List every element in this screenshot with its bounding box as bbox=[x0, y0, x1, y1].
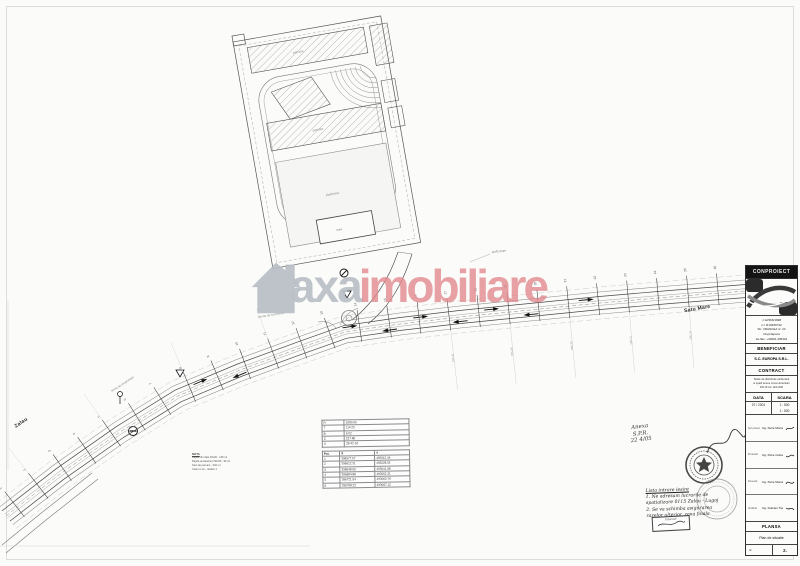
contract-label: CONTRACT bbox=[746, 366, 797, 376]
fork-edge bbox=[6, 479, 98, 553]
station-tick bbox=[154, 387, 171, 414]
lane-arrow-head bbox=[233, 374, 239, 378]
staff-name: Ing. Felician Trandafir bbox=[762, 506, 783, 510]
table-cell: 28-42-16 bbox=[345, 440, 410, 446]
handwritten-memo: Anexa S.P.R. 22 4/05 bbox=[629, 423, 652, 445]
contract-line: DN 1F km 110+500 bbox=[747, 386, 796, 390]
station-tick bbox=[324, 318, 335, 348]
profile-label: profil drum bbox=[492, 248, 507, 254]
projection-line bbox=[171, 343, 183, 373]
station-number: 4 bbox=[72, 432, 76, 436]
handwritten-notes: Lista intrare iesire 1. Ne adresam lucra… bbox=[645, 485, 762, 520]
station-number: 18 bbox=[473, 287, 477, 291]
station-number: 17 bbox=[443, 291, 447, 295]
station-number: 21 bbox=[563, 278, 567, 282]
staff-name: Ing. Petre Muresan bbox=[762, 480, 783, 484]
stamp-box: Intocmit bbox=[652, 515, 691, 532]
data-scara-row: DATA 07 / 2001 SCARA 1 : 500 1 : 500 bbox=[746, 393, 797, 415]
station-number: 3 bbox=[47, 449, 51, 453]
lane-arrow-head bbox=[201, 379, 207, 383]
station-tick bbox=[717, 273, 720, 305]
company-name: CONPROIECT bbox=[746, 266, 797, 279]
signature-icon bbox=[785, 499, 795, 517]
station-number: 23 bbox=[623, 273, 627, 277]
station-number: 16 bbox=[413, 294, 417, 298]
station-number: 1 bbox=[0, 486, 3, 490]
table-row: 6396758.22493067.12 bbox=[323, 482, 410, 489]
beneficiar-label: BENEFICIAR bbox=[746, 344, 797, 354]
plansa-number-row: nr. 2. bbox=[746, 545, 797, 555]
staff-row: Proiectat Ing. Petre Ciubancan bbox=[746, 442, 797, 469]
road-line bbox=[13, 302, 747, 525]
lane-arrow-head bbox=[453, 320, 459, 324]
profile-leader bbox=[470, 254, 490, 262]
staff-role: Desenat bbox=[748, 480, 760, 483]
coordinates-table: Pct.XY1396577.07493012.442396612.3149302… bbox=[322, 449, 411, 489]
plansa-nr-label: nr. bbox=[746, 545, 773, 555]
table-cell: 396758.22 bbox=[340, 482, 375, 488]
scara-cell: SCARA 1 : 500 1 : 500 bbox=[771, 393, 797, 414]
station-number: 26 bbox=[713, 265, 717, 269]
station-tick bbox=[627, 281, 630, 313]
access-road bbox=[318, 252, 412, 328]
staff-name: Ing. Petre Muresan bbox=[762, 426, 783, 430]
parcel-group: parcare parcare platforma statie bbox=[232, 9, 426, 268]
station-tick bbox=[102, 420, 120, 446]
side-building-3 bbox=[388, 106, 405, 128]
side-building-1 bbox=[369, 23, 394, 66]
data-cell: DATA 07 / 2001 bbox=[746, 393, 771, 414]
lane-arrow-head bbox=[588, 298, 594, 302]
station-number: 25 bbox=[683, 268, 687, 272]
nota-line: Casiu in ax - detaliu 1 bbox=[192, 468, 252, 472]
station-tick bbox=[537, 289, 540, 321]
plansa-nr-value: 2. bbox=[773, 546, 797, 555]
data-label: DATA bbox=[746, 393, 771, 402]
station-tick bbox=[567, 286, 570, 318]
access-road-edge bbox=[352, 252, 398, 320]
station-number: 6 bbox=[123, 398, 127, 402]
station-number: 7 bbox=[148, 382, 152, 386]
station-tick bbox=[128, 403, 145, 430]
station-number: 10 bbox=[234, 341, 239, 346]
station-tick bbox=[597, 283, 600, 315]
table-cell: U bbox=[322, 441, 344, 447]
station-number: 15 bbox=[383, 298, 388, 302]
scara-label: SCARA bbox=[772, 393, 797, 402]
station-tick bbox=[687, 276, 690, 308]
staff-role: Sef proiect bbox=[748, 427, 760, 430]
elevation-label: 295.41 bbox=[450, 353, 455, 362]
staff-role: Proiectat bbox=[748, 453, 760, 456]
scara-value: 1 : 500 bbox=[772, 408, 797, 414]
station-tick bbox=[657, 278, 660, 310]
traffic-signs bbox=[118, 269, 352, 436]
signature-icon bbox=[785, 419, 795, 437]
accel-lane-label: banda de accelerare bbox=[258, 311, 286, 319]
station-number: 20 bbox=[533, 281, 537, 285]
table-cell: 6 bbox=[323, 483, 340, 489]
projection-line bbox=[84, 394, 102, 420]
station-number: 24 bbox=[653, 270, 657, 274]
access-road-edge bbox=[368, 254, 412, 324]
staff-name: Ing. Petre Ciubancan bbox=[762, 453, 783, 457]
elevation-label: 295.36 bbox=[509, 347, 514, 356]
projection-line bbox=[9, 448, 29, 473]
plansa-title: Plan de situatie bbox=[746, 532, 797, 545]
nota-block: NOTA Rigola din dale 30x30 - 125 ml Rigo… bbox=[192, 452, 252, 472]
parking-row-top bbox=[247, 27, 368, 73]
yield-sign-icon bbox=[343, 291, 351, 298]
side-building-2 bbox=[381, 78, 399, 102]
station-tick bbox=[53, 454, 71, 480]
station-number: 19 bbox=[503, 284, 507, 288]
station-tick bbox=[507, 292, 510, 324]
signature-icon bbox=[785, 473, 795, 491]
station-number: 9 bbox=[206, 355, 210, 358]
beneficiar-name: S.C. EUROPA S.R.L. bbox=[746, 354, 797, 366]
access-road-end bbox=[398, 252, 412, 254]
station-number: 12 bbox=[291, 320, 296, 325]
signature-icon bbox=[656, 520, 686, 528]
table-cell: 493067.12 bbox=[375, 482, 410, 488]
plansa-label: PLANSA bbox=[746, 522, 797, 532]
station-number: 22 bbox=[593, 275, 597, 279]
contract-description: Statie de distributie carburanti si spat… bbox=[746, 376, 797, 393]
station-tick bbox=[447, 298, 451, 330]
staff-row: Sef proiect Ing. Petre Muresan bbox=[746, 415, 797, 442]
lane-arrow-head bbox=[422, 315, 428, 319]
drawing-sheet: parcare parcare platforma statie bbox=[0, 0, 800, 566]
lane-arrow-head bbox=[493, 307, 499, 311]
post-sign-icon bbox=[118, 392, 123, 397]
lane-arrow-head bbox=[524, 313, 530, 317]
station-tick bbox=[268, 339, 279, 369]
coordinate-tables: R1000.00T114.25B6.52C227.80U28-42-16Pct.… bbox=[321, 418, 410, 492]
station-tick bbox=[296, 328, 307, 358]
signature-icon bbox=[785, 446, 795, 464]
geometry-table: R1000.00T114.25B6.52C227.80U28-42-16 bbox=[321, 418, 409, 447]
elevation-label: 295.21 bbox=[628, 335, 633, 344]
ramp-fan bbox=[360, 64, 376, 80]
station-number: 14 bbox=[353, 302, 358, 306]
property-limit-label: limita de proprietate bbox=[110, 375, 135, 393]
station-tick bbox=[477, 295, 480, 327]
reg-line: tel./fax. +40264 435344 bbox=[746, 337, 797, 342]
data-value: 07 / 2001 bbox=[746, 402, 771, 408]
company-logo bbox=[746, 279, 797, 316]
elevation-label: 295.28 bbox=[569, 341, 574, 350]
elevation-label: 295.14 bbox=[688, 330, 693, 339]
station-number: 13 bbox=[319, 310, 324, 315]
company-registration: J 12/366/1998 c.f. R10406732 Str. VRANCE… bbox=[746, 316, 797, 344]
